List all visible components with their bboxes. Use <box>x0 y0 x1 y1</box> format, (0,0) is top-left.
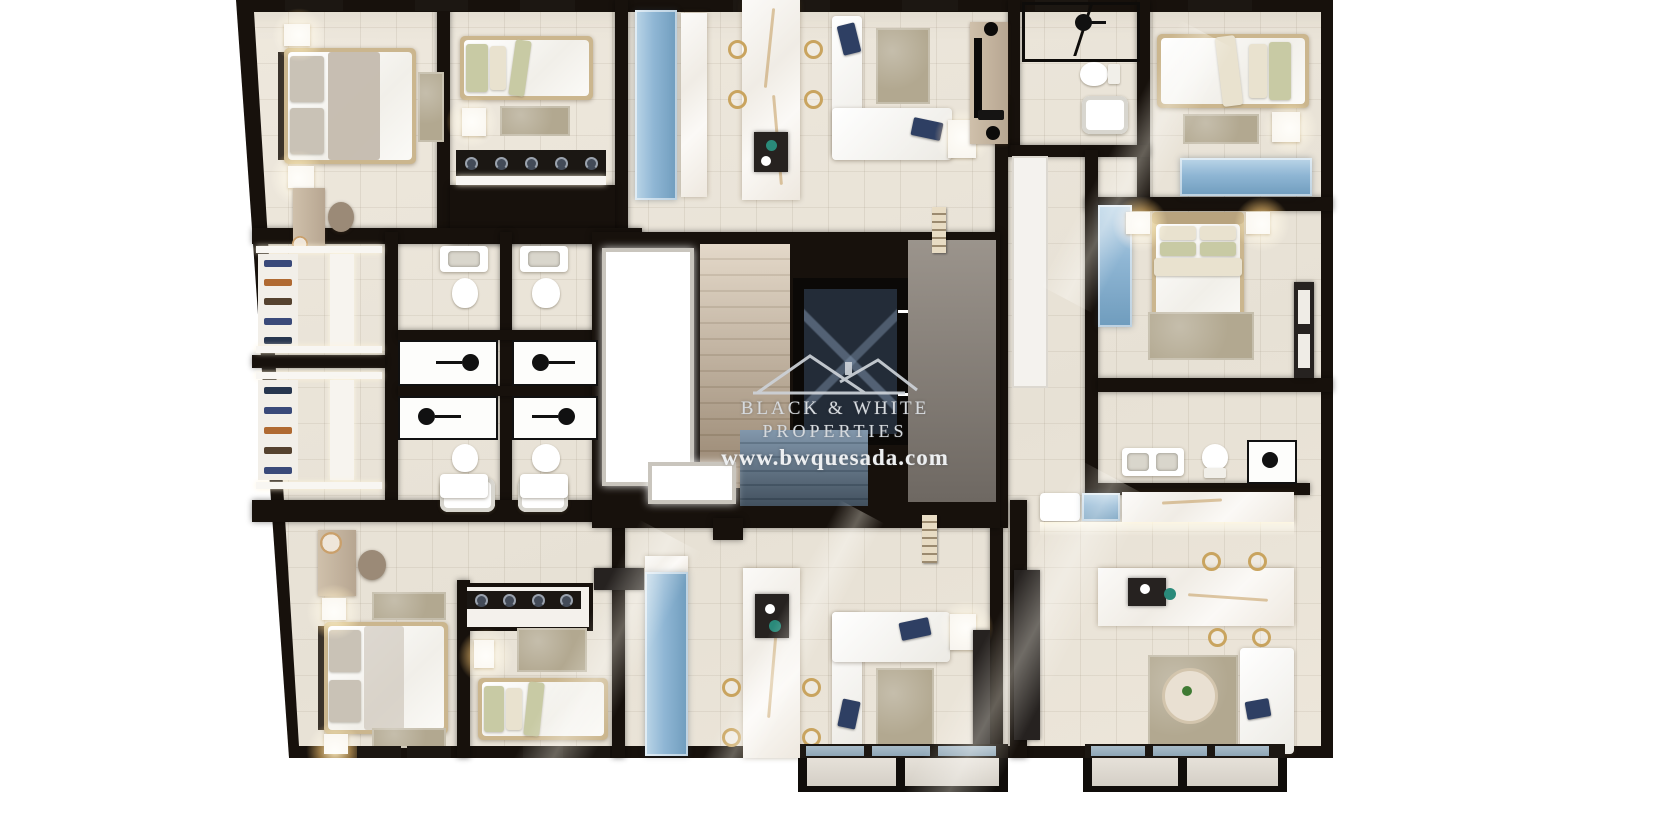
sofa-top-arm <box>832 612 950 662</box>
terrace-glass <box>806 746 864 756</box>
balcony-post <box>1083 758 1092 792</box>
headboard <box>1152 212 1244 224</box>
window <box>523 746 563 758</box>
skylight-window <box>520 0 575 11</box>
kitchen-island <box>742 0 800 200</box>
glass-cabinet <box>635 10 677 200</box>
wardrobe-clothes-rail <box>467 591 581 609</box>
vanity <box>520 474 568 498</box>
closet-column <box>330 380 354 480</box>
terrace-glass <box>938 746 996 756</box>
cabinet <box>594 568 644 590</box>
shower-head-icon <box>418 408 435 425</box>
bar-stool <box>1248 552 1267 571</box>
terrace-glass <box>1091 746 1145 756</box>
light-well <box>602 248 694 486</box>
wall <box>990 527 1003 758</box>
terrace-glass <box>1153 746 1207 756</box>
wall <box>615 0 628 232</box>
shower-tray <box>398 396 498 440</box>
terrace-glass <box>1215 746 1269 756</box>
bar-stool <box>802 678 821 697</box>
pillow <box>1249 44 1267 98</box>
plant-icon <box>1182 686 1192 696</box>
soundbar <box>978 110 1004 120</box>
pillow <box>290 108 324 154</box>
bar-stool <box>728 40 747 59</box>
closet-lit-shelf <box>256 372 382 379</box>
garment <box>264 279 292 286</box>
pillow <box>484 686 504 732</box>
watermark-line-2: PROPERTIES <box>700 421 970 442</box>
watermark-url: www.bwquesada.com <box>690 445 980 471</box>
nightstand <box>462 108 486 136</box>
shower-arm <box>532 415 558 418</box>
skylight-window <box>1188 0 1252 11</box>
kitchen-island <box>1098 568 1294 626</box>
nightstand <box>324 734 348 754</box>
bar-stool <box>1202 552 1221 571</box>
vanity <box>1122 448 1184 476</box>
toilet <box>532 278 560 308</box>
single-bed <box>1157 34 1309 108</box>
closet-clothes-rail <box>258 254 298 350</box>
step-shelf <box>932 207 946 253</box>
skylight-window <box>902 0 958 11</box>
bar-stool <box>722 678 741 697</box>
corridor-door-panels <box>1012 156 1048 388</box>
tv-screen <box>974 38 982 118</box>
desk-chair <box>358 550 386 580</box>
step-shelf <box>922 515 937 563</box>
nightstand <box>1272 112 1300 142</box>
decor-bowl <box>1164 588 1176 600</box>
watermark-line-1: BLACK & WHITE <box>700 398 970 420</box>
hanger-icon <box>555 157 568 170</box>
double-bed <box>284 48 416 164</box>
rug <box>876 668 934 752</box>
nightstand <box>322 598 346 620</box>
shower-arm <box>435 415 461 418</box>
bar-stool <box>722 728 741 747</box>
wall <box>398 330 598 340</box>
dining-table <box>1162 668 1218 724</box>
closet-lit-shelf <box>256 246 382 253</box>
nightstand <box>284 24 310 46</box>
single-bed <box>478 678 608 740</box>
toilet <box>1202 444 1228 470</box>
throw <box>1154 258 1242 276</box>
under-counter-light <box>1040 522 1294 536</box>
toilet <box>452 278 478 308</box>
pillow <box>1200 226 1236 240</box>
appliance-column <box>1014 570 1040 740</box>
speaker-icon <box>984 22 998 36</box>
wall <box>1085 150 1098 500</box>
shower-head-icon <box>558 408 575 425</box>
closet-lit-shelf <box>256 482 382 489</box>
shower-arm <box>1090 21 1106 24</box>
window <box>407 746 451 758</box>
wardrobe-shelf <box>456 176 606 185</box>
garment <box>264 447 292 454</box>
sink-bowl <box>448 251 480 267</box>
vanity <box>440 246 488 272</box>
bar-stool <box>804 90 823 109</box>
glass-cabinet <box>1082 493 1120 521</box>
garment <box>264 467 292 474</box>
floorplan-render: BLACK & WHITE PROPERTIES www.bwquesada.c… <box>0 0 1668 820</box>
wall <box>713 518 743 540</box>
window-frame <box>1294 282 1314 378</box>
kitchen-counter <box>681 13 707 197</box>
rug <box>517 628 587 672</box>
balcony-post <box>1178 758 1187 792</box>
toilet-tank <box>1204 468 1226 478</box>
balcony-post <box>798 758 807 792</box>
blanket <box>328 52 380 160</box>
rug <box>1183 114 1259 144</box>
hanger-icon <box>585 157 598 170</box>
bar-stool <box>1252 628 1271 647</box>
glass-wardrobe <box>1180 158 1312 196</box>
wall <box>252 355 385 368</box>
bar-stool <box>728 90 747 109</box>
shower-head-icon <box>532 354 549 371</box>
skylight-window <box>415 0 468 11</box>
hanger-icon <box>525 157 538 170</box>
wall <box>612 522 625 758</box>
window <box>357 746 401 758</box>
pillow <box>1269 42 1291 100</box>
agency-roof-logo-icon <box>745 348 925 398</box>
closet-column <box>330 254 354 350</box>
balcony-post <box>999 758 1008 792</box>
decor-bowl <box>766 140 777 151</box>
kitchen-island <box>743 568 800 758</box>
decor-bowl <box>769 620 781 632</box>
shower-head-icon <box>1262 452 1278 468</box>
toilet <box>1080 62 1108 86</box>
cabinet <box>1040 493 1080 521</box>
wall <box>1008 0 1020 150</box>
skylight-window <box>285 0 343 11</box>
sink-bowl <box>1127 453 1149 471</box>
shower-head-icon <box>462 354 479 371</box>
closet-lit-shelf <box>256 346 382 353</box>
blanket <box>364 626 404 730</box>
vanity <box>440 474 488 498</box>
tv-unit <box>973 630 990 747</box>
double-bed <box>324 622 448 734</box>
hanger-icon <box>475 594 488 607</box>
bathtub <box>1082 96 1128 134</box>
hanger-icon <box>560 594 573 607</box>
garment <box>264 318 292 325</box>
wall <box>1098 378 1333 392</box>
hanger-icon <box>465 157 478 170</box>
rug <box>372 728 446 748</box>
window <box>570 746 610 758</box>
sink-bowl <box>528 251 560 267</box>
balcony-post <box>896 758 905 792</box>
pillow <box>506 688 522 730</box>
single-bed <box>460 36 593 100</box>
garment <box>264 337 292 344</box>
hanger-icon <box>503 594 516 607</box>
garment <box>264 387 292 394</box>
balcony-post <box>1278 758 1287 792</box>
wall <box>385 232 398 500</box>
shower-tray <box>512 396 598 440</box>
nightstand <box>1126 212 1150 234</box>
wall <box>500 232 512 500</box>
pillow <box>290 56 324 102</box>
shower-arm <box>549 361 575 364</box>
pillow <box>466 44 488 92</box>
nightstand <box>1246 212 1270 234</box>
pillow <box>1200 242 1236 256</box>
rug <box>1148 312 1254 360</box>
cooktop <box>754 132 788 172</box>
garment <box>264 260 292 267</box>
rug <box>500 106 570 136</box>
garment <box>264 298 292 305</box>
shower-arm <box>436 361 462 364</box>
pillow <box>1160 226 1196 240</box>
terrace-glass <box>872 746 930 756</box>
vanity <box>520 246 568 272</box>
rug <box>372 592 446 620</box>
garment <box>264 407 292 414</box>
counter-cap <box>645 556 688 572</box>
nightstand <box>474 640 494 668</box>
bar-stool <box>804 40 823 59</box>
pillow <box>490 46 506 90</box>
toilet <box>532 444 560 472</box>
kitchen-counter <box>1122 492 1294 522</box>
media-wall-unit <box>970 22 1008 144</box>
pillow <box>329 630 361 672</box>
toilet-tank <box>1108 64 1120 84</box>
nightstand <box>288 166 314 188</box>
hanger-icon <box>495 157 508 170</box>
sink-bowl <box>1156 453 1178 471</box>
glass-cabinet <box>645 572 688 756</box>
pillow <box>329 680 361 722</box>
closet-clothes-rail <box>258 380 298 480</box>
bar-stool <box>1208 628 1227 647</box>
rug <box>418 72 444 142</box>
toilet <box>452 444 478 472</box>
mirror <box>320 532 342 554</box>
speaker-icon <box>986 126 1000 140</box>
wardrobe <box>463 583 593 631</box>
wall <box>398 386 598 396</box>
desk-chair <box>328 202 354 232</box>
pillow <box>1160 242 1196 256</box>
hanger-icon <box>532 594 545 607</box>
wardrobe-clothes-rail <box>456 150 606 176</box>
garment <box>264 427 292 434</box>
